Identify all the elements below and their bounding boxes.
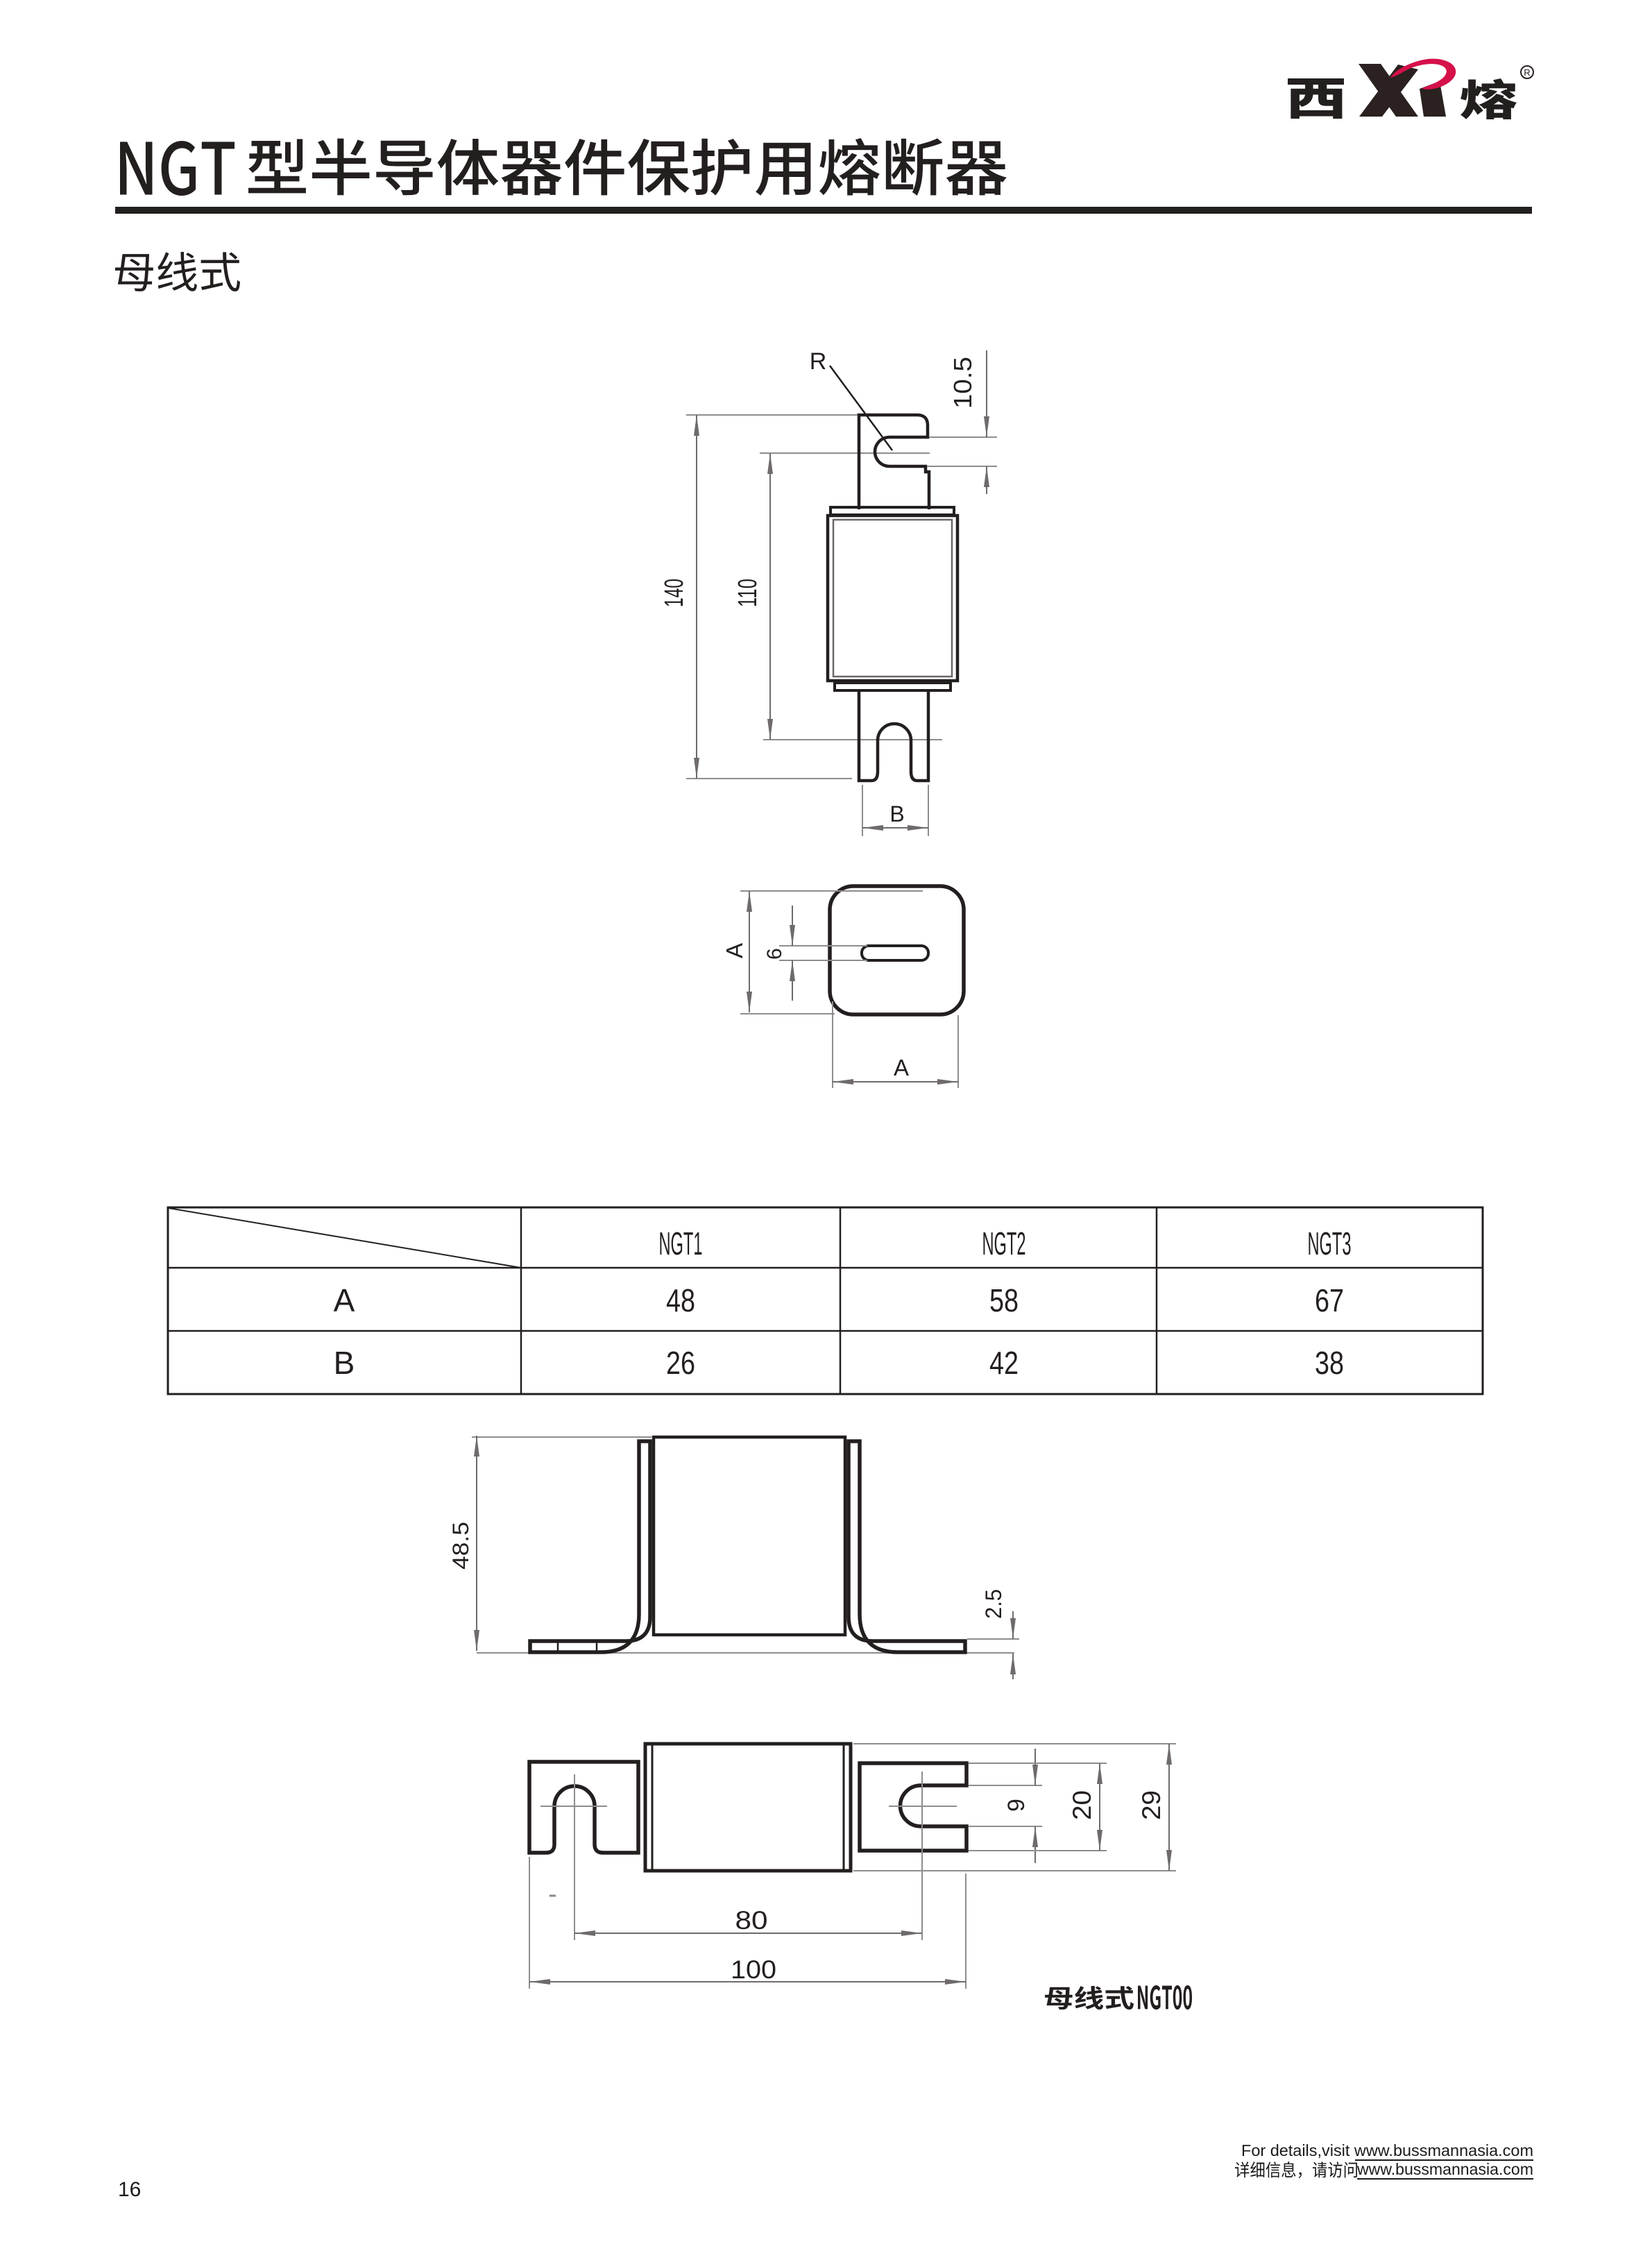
svg-text:20: 20 (1068, 1790, 1096, 1820)
svg-text:48.5: 48.5 (448, 1522, 473, 1570)
svg-text:B: B (889, 801, 904, 826)
svg-text:R: R (1524, 67, 1530, 78)
svg-text:16: 16 (118, 2178, 141, 2201)
svg-text:A: A (334, 1282, 355, 1318)
svg-text:www.bussmannasia.com: www.bussmannasia.com (1356, 2160, 1533, 2178)
svg-text:26: 26 (666, 1345, 695, 1381)
svg-text:6: 6 (763, 948, 786, 960)
svg-text:38: 38 (1315, 1345, 1344, 1381)
svg-text:100: 100 (731, 1955, 776, 1984)
svg-text:80: 80 (735, 1906, 768, 1935)
svg-text:For details,visit www.bussmann: For details,visit www.bussmannasia.com (1241, 2141, 1533, 2159)
svg-text:110: 110 (733, 579, 763, 607)
svg-text:48: 48 (666, 1282, 695, 1318)
svg-text:9: 9 (1003, 1799, 1030, 1812)
svg-text:NGT2: NGT2 (982, 1225, 1026, 1262)
svg-text:A: A (894, 1055, 909, 1080)
svg-text:42: 42 (989, 1345, 1019, 1381)
svg-text:A: A (722, 943, 747, 958)
svg-text:10.5: 10.5 (948, 357, 977, 409)
svg-text:58: 58 (989, 1282, 1019, 1318)
svg-text:NGT3: NGT3 (1308, 1225, 1352, 1262)
svg-text:67: 67 (1315, 1282, 1344, 1318)
svg-text:R: R (810, 348, 827, 375)
svg-text:NGT1: NGT1 (659, 1225, 703, 1262)
svg-text:B: B (334, 1345, 355, 1381)
svg-text:29: 29 (1137, 1790, 1166, 1820)
svg-text:140: 140 (660, 579, 689, 607)
svg-text:2.5: 2.5 (981, 1589, 1006, 1619)
